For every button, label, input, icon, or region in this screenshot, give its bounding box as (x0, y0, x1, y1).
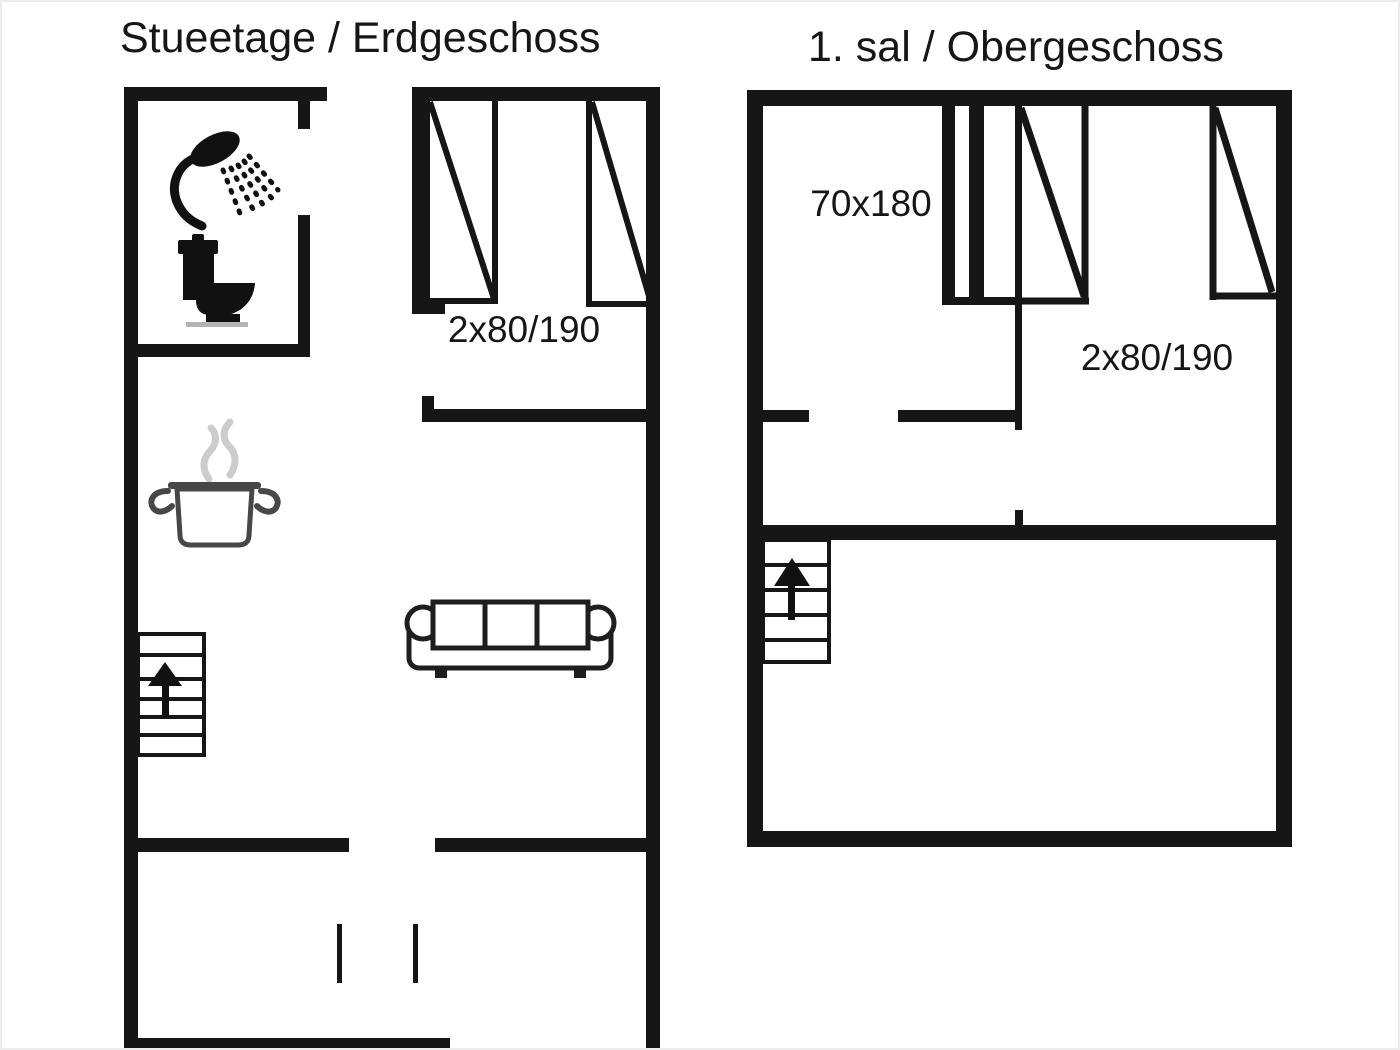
wall-segment (763, 410, 809, 422)
wall-segment (435, 838, 660, 852)
floorplan-page: Stueetage / Erdgeschoss (0, 0, 1400, 1050)
bed-diagonal (1215, 108, 1272, 292)
shower-spray (223, 156, 278, 216)
sofa-icon (407, 602, 614, 678)
wall-segment (747, 90, 763, 847)
steam-icon (204, 422, 235, 479)
ground-entry-walls (124, 838, 660, 983)
door-frame-mark (337, 924, 342, 983)
toilet-icon (178, 234, 255, 327)
wall-segment (747, 90, 1292, 106)
wall-segment (898, 410, 1016, 422)
wall-segment (763, 525, 1276, 540)
wall-segment (298, 87, 310, 129)
wall-segment (942, 106, 955, 304)
floorplan-canvas: Stueetage / Erdgeschoss (2, 2, 1400, 1050)
shower-icon (174, 124, 278, 226)
sofa-foot (435, 668, 447, 678)
bed-foot (942, 297, 1016, 305)
wall-segment (124, 838, 349, 852)
wall-segment (412, 87, 660, 101)
sofa-cushions (433, 602, 588, 648)
stairs-outline (763, 540, 829, 662)
stairs-treads (138, 655, 204, 735)
stairs-arrow-head (774, 558, 810, 586)
stairs-arrow-shaft (162, 686, 169, 716)
pot-handle-right (257, 491, 278, 512)
wall-segment (412, 87, 426, 314)
ground-floor-plan: Stueetage / Erdgeschoss (120, 14, 660, 1050)
ground-bedroom-walls (412, 87, 660, 422)
pot-handle-left (151, 491, 172, 512)
shower-hose (174, 158, 202, 226)
bed-diagonal (592, 102, 649, 296)
ground-beds-size-label: 2x80/190 (448, 309, 600, 350)
upper-beds (1016, 106, 1276, 303)
stairs-arrow-head (148, 662, 182, 686)
wall-segment (298, 215, 310, 357)
pot-body (177, 489, 252, 545)
room-divider-wall (1015, 106, 1022, 430)
sofa-foot (574, 668, 586, 678)
wall-segment (124, 344, 310, 357)
stairs-up-icon (138, 634, 204, 755)
toilet-base-shadow (186, 322, 248, 327)
stairs-up-icon (763, 540, 829, 662)
junior-bed-70x180 (942, 106, 1016, 305)
wall-segment (1276, 90, 1292, 847)
wall-segment (124, 1038, 450, 1050)
bed-diagonal (430, 102, 494, 299)
upper-floor-plan: 1. sal / Obergeschoss 70x180 2x80/190 (747, 23, 1292, 847)
wall-stub (1015, 510, 1023, 525)
upper-beds-size-label: 2x80/190 (1081, 337, 1233, 378)
junior-bed-size-label: 70x180 (810, 183, 931, 224)
wall-segment (646, 87, 660, 1050)
wall-segment (124, 87, 138, 1050)
door-frame-mark (413, 924, 418, 983)
bed-diagonal (1021, 108, 1084, 296)
ground-floor-outer-walls (124, 87, 660, 1050)
upper-floor-title: 1. sal / Obergeschoss (808, 23, 1224, 71)
wall-segment (422, 396, 434, 409)
cooking-pot-icon (151, 422, 277, 545)
ground-floor-title: Stueetage / Erdgeschoss (120, 14, 600, 62)
wall-segment (422, 409, 660, 422)
wall-segment (124, 87, 327, 101)
wall-segment (747, 831, 1292, 847)
stairs-arrow-shaft (788, 586, 795, 620)
ground-beds (424, 101, 652, 304)
wall-segment (969, 106, 984, 304)
